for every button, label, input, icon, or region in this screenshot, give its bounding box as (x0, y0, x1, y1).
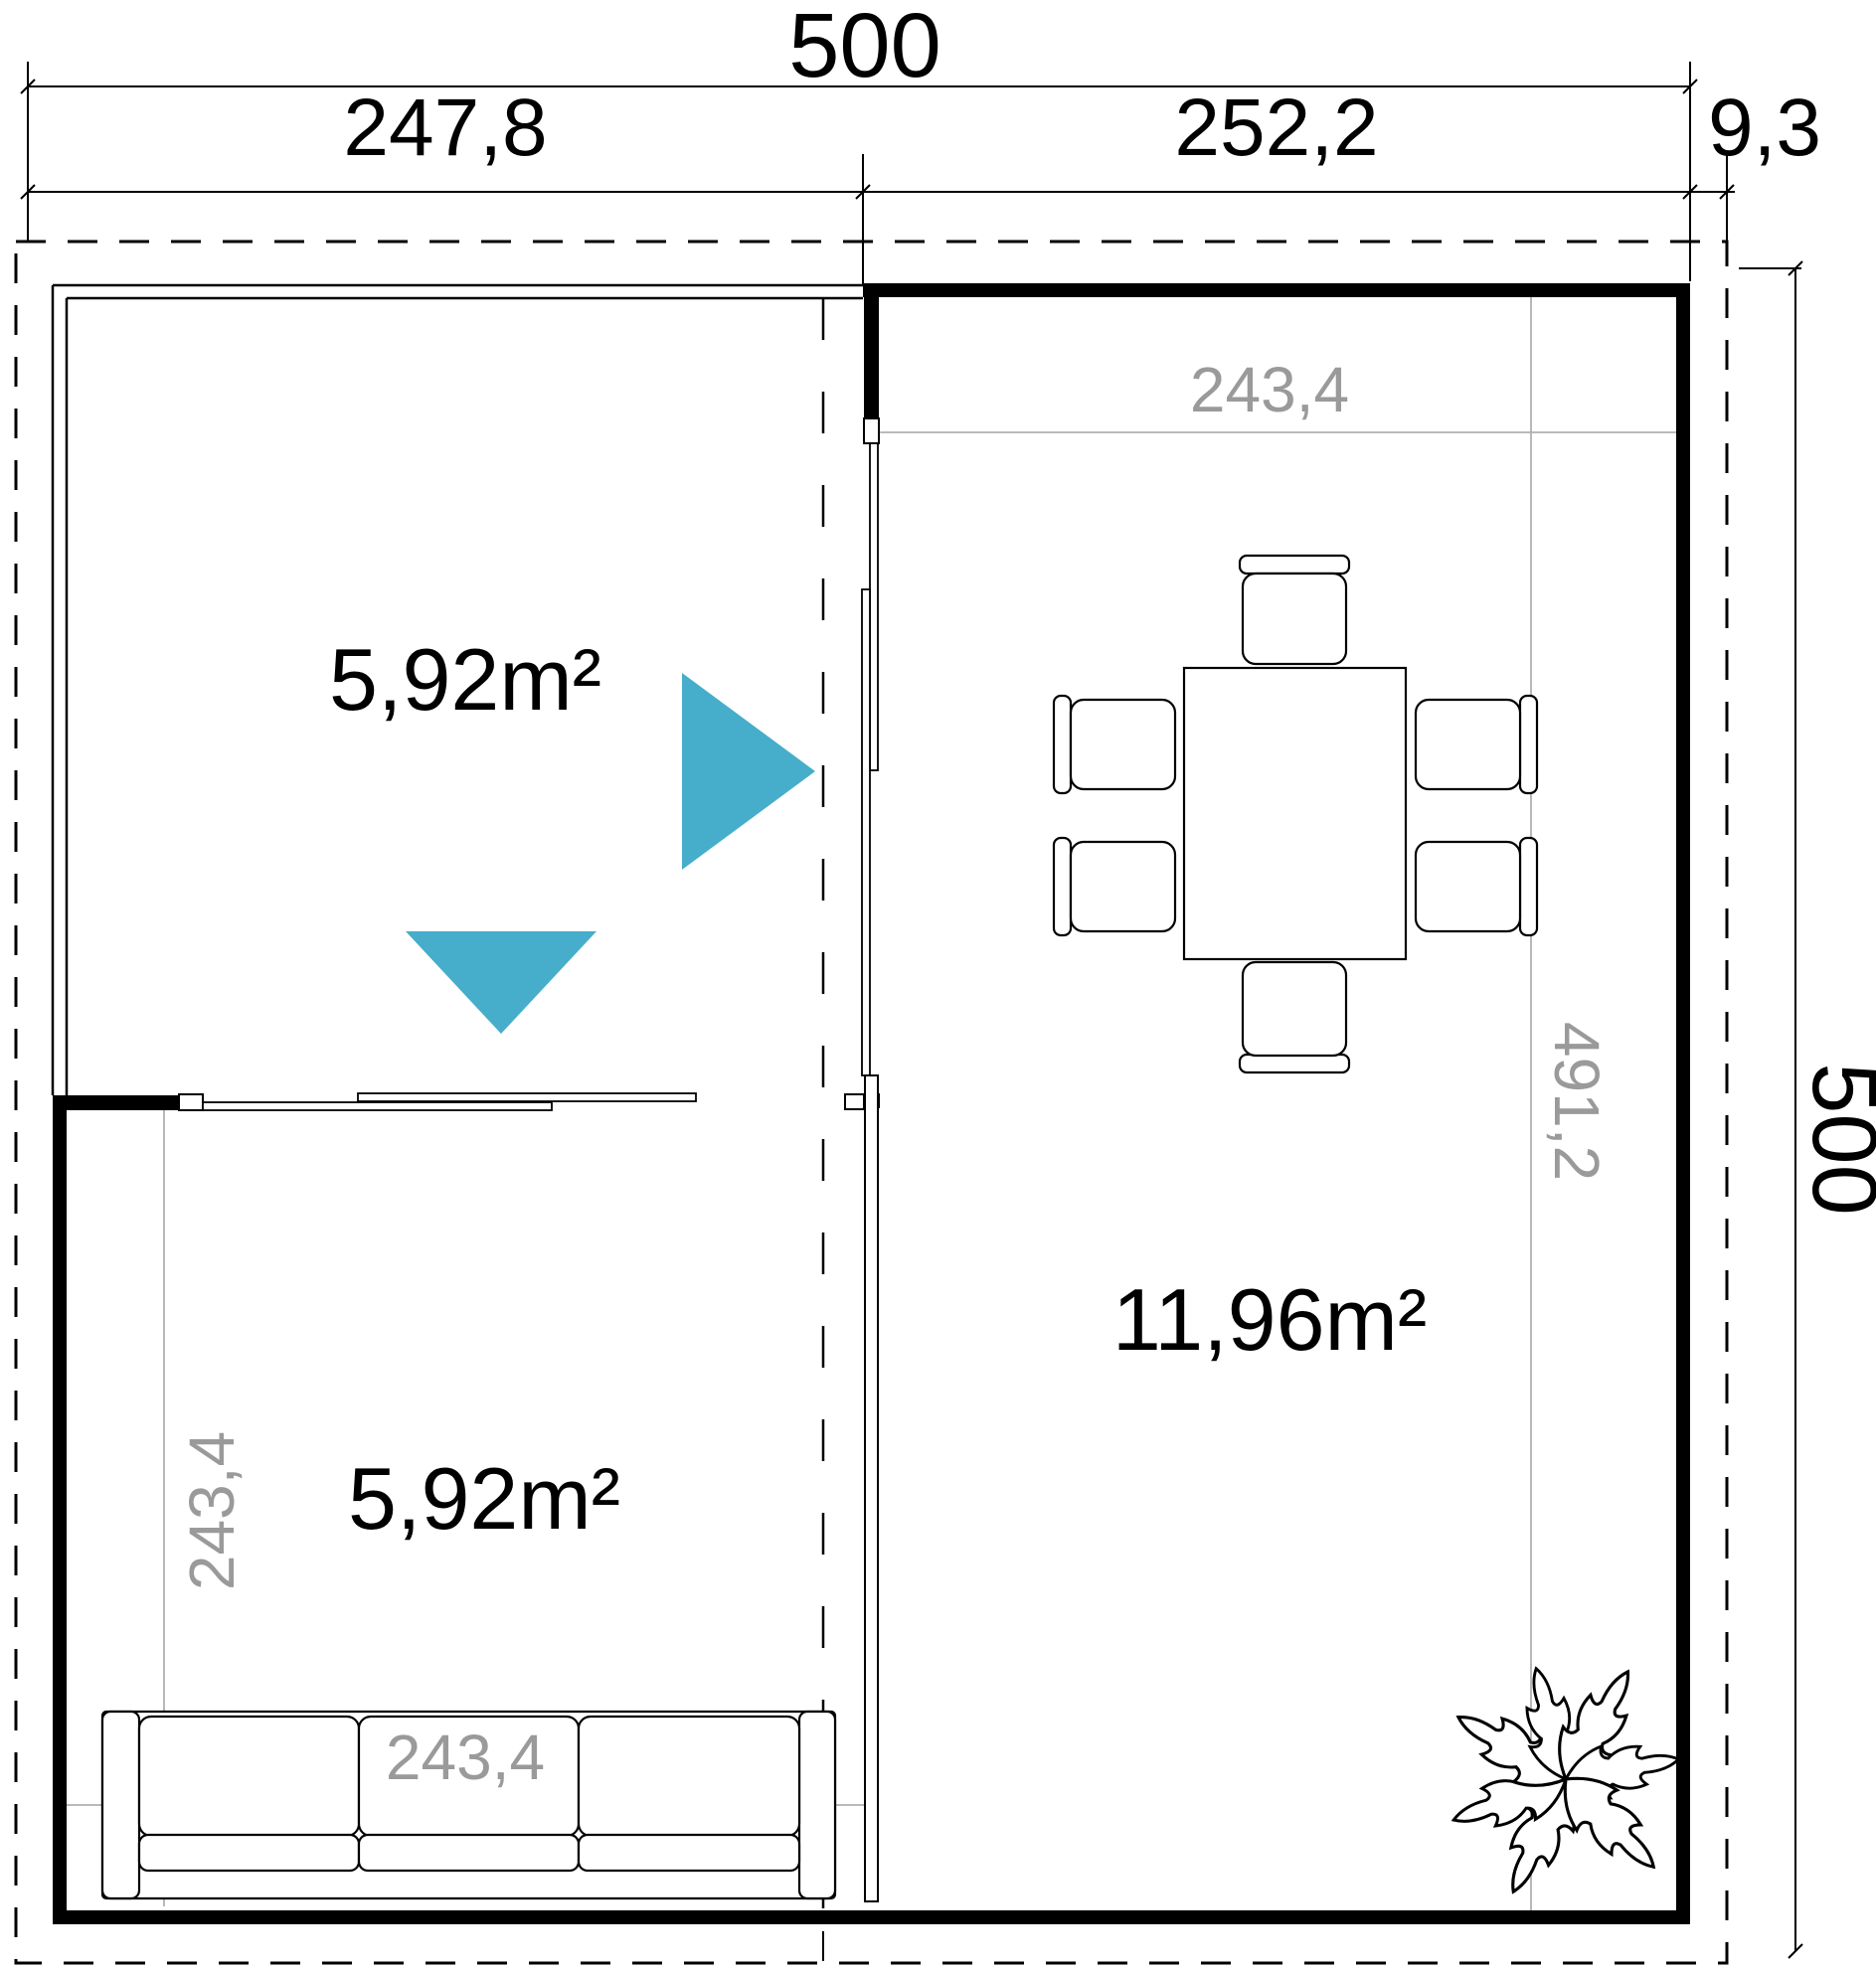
sofa-seat-cushion (359, 1835, 579, 1871)
dim-overall-height-label: 500 (1798, 1040, 1876, 1238)
area-label-porch: 5,92m² (266, 636, 664, 724)
chair-back (1054, 696, 1071, 793)
sofa-seat-cushion (139, 1835, 359, 1871)
door-post-center-left (845, 1094, 864, 1109)
sliding-panel-horizontal-upper (358, 1093, 696, 1101)
area-label-main-room: 11,96m² (1021, 1276, 1518, 1364)
chair-seat (1243, 962, 1346, 1056)
chair-seat (1071, 700, 1175, 789)
sliding-panel-horizontal-lower (203, 1102, 552, 1110)
wall-divider-left (53, 1095, 179, 1110)
interior-dim-main-height-label: 491,2 (1545, 952, 1609, 1250)
chair-seat (1243, 574, 1346, 664)
sliding-panel-vertical-left (862, 589, 870, 1075)
dining-table (1184, 668, 1406, 959)
arrow-down-icon (406, 931, 597, 1034)
interior-dim-main-width-label: 243,4 (1120, 358, 1419, 421)
wall-center-top (864, 297, 879, 418)
door-post-horizontal (179, 1094, 203, 1110)
chair-back (1240, 1055, 1349, 1072)
dim-segment-right-label: 252,2 (1127, 87, 1426, 169)
glazed-panel-vertical-long (865, 1075, 878, 1901)
dim-overhang-label: 9,3 (1695, 87, 1834, 169)
sofa-armrest-left (102, 1712, 139, 1898)
dim-segment-left-label: 247,8 (296, 87, 595, 169)
chair-seat (1416, 700, 1520, 789)
sofa-seat-cushion (579, 1835, 799, 1871)
wall-right (1676, 283, 1690, 1924)
wall-left-lounge (53, 1095, 67, 1924)
floor-plan-canvas: 500 247,8 252,2 9,3 500 5,92m² 5,92m² 11… (0, 0, 1876, 1971)
chair-back (1520, 838, 1537, 935)
arrow-right-icon (682, 673, 815, 870)
interior-dim-lounge-width-label: 243,4 (316, 1725, 614, 1789)
door-post-vertical (864, 418, 879, 443)
chair-back (1054, 838, 1071, 935)
dining-table-set (1054, 556, 1537, 1072)
chair-seat (1416, 842, 1520, 931)
wall-bottom (53, 1910, 1690, 1924)
chair-back (1240, 556, 1349, 574)
wall-top-main-room (863, 283, 1690, 297)
area-label-lounge: 5,92m² (285, 1455, 683, 1543)
chair-back (1520, 696, 1537, 793)
sliding-panel-vertical-right (870, 443, 878, 770)
dim-overall-width-label: 500 (766, 0, 964, 91)
plant-icon (1445, 1658, 1683, 1904)
sofa-armrest-right (799, 1712, 835, 1898)
chair-seat (1071, 842, 1175, 931)
interior-dim-lounge-height-label: 243,4 (180, 1362, 244, 1660)
